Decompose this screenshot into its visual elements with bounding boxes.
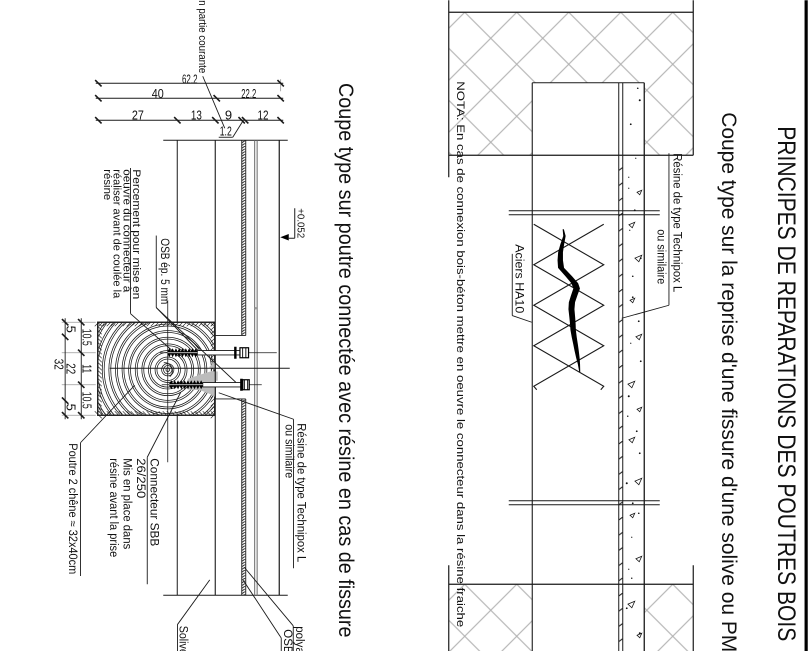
- svg-text:n partie courante: n partie courante: [196, 0, 208, 73]
- svg-text:Mis en place dans: Mis en place dans: [120, 458, 132, 549]
- svg-text:11: 11: [79, 364, 94, 373]
- svg-text:résine avant la prise: résine avant la prise: [107, 458, 119, 557]
- svg-text:9: 9: [225, 108, 232, 123]
- svg-text:Connecteur SBB: Connecteur SBB: [147, 458, 159, 546]
- svg-text:5: 5: [63, 404, 78, 411]
- svg-text:Résine de type Technipox L: Résine de type Technipox L: [294, 423, 306, 563]
- svg-text:32: 32: [51, 359, 66, 370]
- svg-text:Résine de type Technipox L: Résine de type Technipox L: [670, 153, 682, 293]
- svg-text:ou similaire: ou similaire: [654, 229, 666, 284]
- svg-text:PRINCIPES DE REPARATIONS DES P: PRINCIPES DE REPARATIONS DES POUTRES BOI…: [772, 126, 800, 641]
- svg-text:10.5: 10.5: [79, 392, 94, 409]
- svg-text:NOTA: En cas de connexion bois: NOTA: En cas de connexion bois-béton met…: [454, 81, 466, 627]
- svg-text:62.2: 62.2: [182, 72, 198, 87]
- svg-text:OSB ép. 5 mm: OSB ép. 5 mm: [158, 238, 170, 304]
- svg-text:Solive: Solive: [176, 626, 188, 651]
- svg-text:Coupe type sur poutre connecté: Coupe type sur poutre connectée avec rés…: [334, 83, 358, 638]
- svg-text:Coupe type sur la reprise d'un: Coupe type sur la reprise d'une fissure …: [717, 112, 741, 651]
- svg-text:12: 12: [257, 108, 268, 123]
- svg-text:polyane: polyane: [293, 626, 305, 651]
- svg-text:27: 27: [132, 108, 144, 123]
- svg-text:OSB 3: OSB 3: [281, 629, 293, 651]
- svg-text:Aciers HA10: Aciers HA10: [512, 244, 524, 313]
- svg-text:13: 13: [191, 108, 202, 123]
- svg-text:1.2: 1.2: [220, 124, 232, 139]
- svg-text:Poutre 2 chêne ≈ 32x40cm: Poutre 2 chêne ≈ 32x40cm: [66, 443, 78, 574]
- svg-text:résine: résine: [101, 169, 113, 200]
- svg-text:26/250: 26/250: [134, 458, 146, 498]
- svg-text:22.2: 22.2: [241, 86, 256, 101]
- svg-text:5: 5: [63, 326, 78, 333]
- svg-text:+0.052: +0.052: [295, 208, 307, 238]
- svg-text:40: 40: [152, 86, 164, 101]
- svg-text:ou similaire: ou similaire: [282, 424, 294, 478]
- svg-text:10.5: 10.5: [79, 329, 94, 346]
